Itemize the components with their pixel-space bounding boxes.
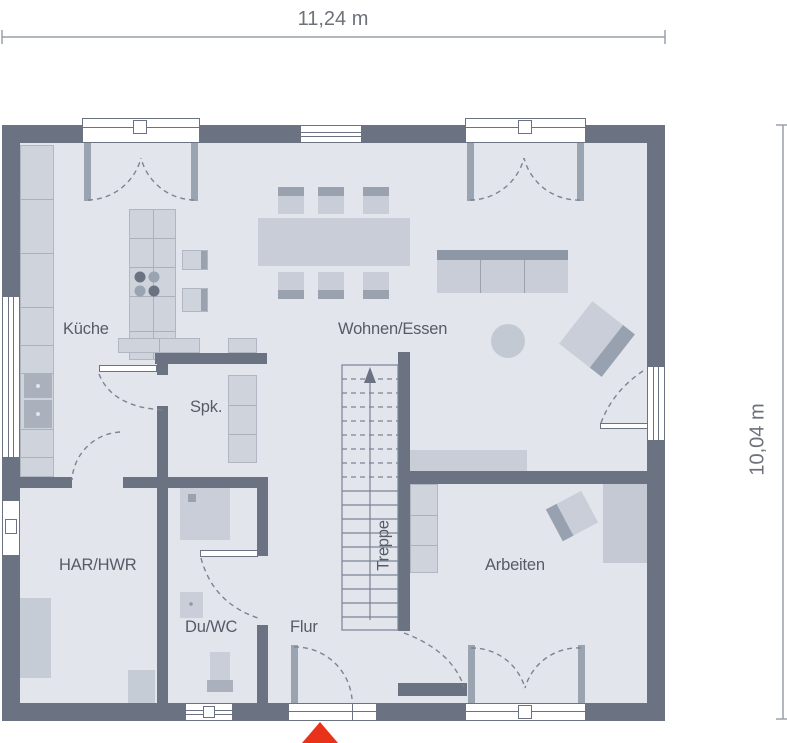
shelf-divider	[229, 405, 256, 406]
door-handle-icon	[133, 120, 147, 134]
counter-divider	[21, 345, 53, 346]
terrace-door-right	[647, 366, 665, 441]
counter-divider	[21, 429, 53, 430]
window-top	[300, 125, 362, 143]
room-label-du-wc: Du/WC	[185, 618, 237, 637]
door-post	[191, 143, 198, 201]
kitchen-counter-band	[118, 338, 200, 353]
sideboard	[408, 450, 527, 472]
wall-pantry-top	[155, 353, 267, 364]
wall-stub	[157, 364, 168, 375]
cabinet-edge	[201, 251, 207, 269]
window-kitchen-left	[2, 296, 20, 458]
door-handle-icon	[518, 705, 532, 719]
sofa-back	[437, 250, 568, 260]
door-leaf-pantry	[99, 365, 157, 372]
sofa-cushion-divider	[480, 260, 481, 293]
wall-pantry-left	[157, 406, 168, 487]
kitchen-cabinet	[182, 250, 208, 270]
door-post	[577, 143, 584, 201]
island-divider	[153, 210, 154, 359]
counter-divider	[21, 253, 53, 254]
floor-plan: 11,24 m 10,04 m Küche Wohnen/Essen Spk. …	[0, 0, 787, 743]
counter-divider	[21, 307, 53, 308]
wall-wohnen-arbeiten	[410, 471, 648, 484]
door-leaf-duwc	[200, 550, 258, 557]
wall-duwc-right-upper	[257, 477, 268, 556]
door-leaf-terrace	[600, 423, 648, 429]
room-label-spk: Spk.	[190, 398, 222, 417]
front-door	[288, 703, 377, 721]
door-division	[352, 704, 353, 720]
room-label-flur: Flur	[290, 618, 318, 637]
entrance-arrow-icon	[302, 722, 338, 743]
door-post	[291, 645, 298, 703]
sofa	[437, 250, 568, 293]
window-detail	[5, 519, 17, 534]
shelf-divider	[229, 434, 256, 435]
bookshelf	[410, 484, 438, 573]
dining-chair	[363, 187, 389, 214]
counter-divider	[21, 199, 53, 200]
shelf-divider	[411, 515, 437, 516]
desk	[603, 484, 648, 563]
island-divider	[130, 331, 175, 332]
dining-chair	[278, 187, 304, 214]
door-post	[467, 143, 474, 201]
dining-chair	[363, 272, 389, 299]
counter-divider	[21, 457, 53, 458]
room-label-treppe: Treppe	[375, 516, 394, 576]
door-post	[578, 645, 585, 703]
window-detail	[203, 706, 215, 718]
door-handle-icon	[518, 120, 532, 134]
cabinet	[128, 670, 155, 703]
toilet-tank	[207, 680, 233, 692]
kitchen-cabinet	[182, 288, 208, 312]
shower-head-icon	[188, 494, 196, 502]
coffee-table	[491, 324, 525, 358]
room-label-kueche: Küche	[63, 320, 109, 339]
dining-table	[258, 218, 410, 266]
wall-har-duwc	[157, 487, 168, 703]
island-divider	[130, 296, 175, 297]
dimension-height-label: 10,04 m	[747, 394, 770, 486]
wall-kitchen-har-left	[20, 477, 72, 488]
room-label-wohnen-essen: Wohnen/Essen	[338, 320, 447, 339]
kitchen-counter-band	[228, 338, 257, 353]
door-post	[84, 143, 91, 201]
dishwasher-icon	[24, 400, 52, 428]
door-post	[468, 645, 475, 703]
oven-icon	[24, 374, 52, 398]
island-divider	[130, 238, 175, 239]
sofa-cushion-divider	[524, 260, 525, 293]
shower	[180, 488, 230, 540]
room-label-har-hwr: HAR/HWR	[59, 556, 136, 575]
washer-column	[20, 598, 51, 678]
toilet	[210, 652, 230, 680]
wall-duwc-right-lower	[257, 625, 268, 703]
room-label-arbeiten: Arbeiten	[485, 556, 545, 575]
counter-divider	[159, 339, 160, 352]
pantry-shelf	[228, 375, 257, 463]
wall-stair-right	[398, 352, 410, 631]
dining-chair	[318, 272, 344, 299]
dining-chair	[278, 272, 304, 299]
dining-chair	[318, 187, 344, 214]
cabinet-edge	[201, 289, 207, 311]
island-divider	[130, 267, 175, 268]
dimension-width-label: 11,24 m	[283, 8, 383, 31]
wall-kitchen-har-right	[123, 477, 267, 488]
wall-flur-arbeiten	[398, 683, 467, 696]
shelf-divider	[411, 545, 437, 546]
washbasin	[180, 592, 203, 618]
